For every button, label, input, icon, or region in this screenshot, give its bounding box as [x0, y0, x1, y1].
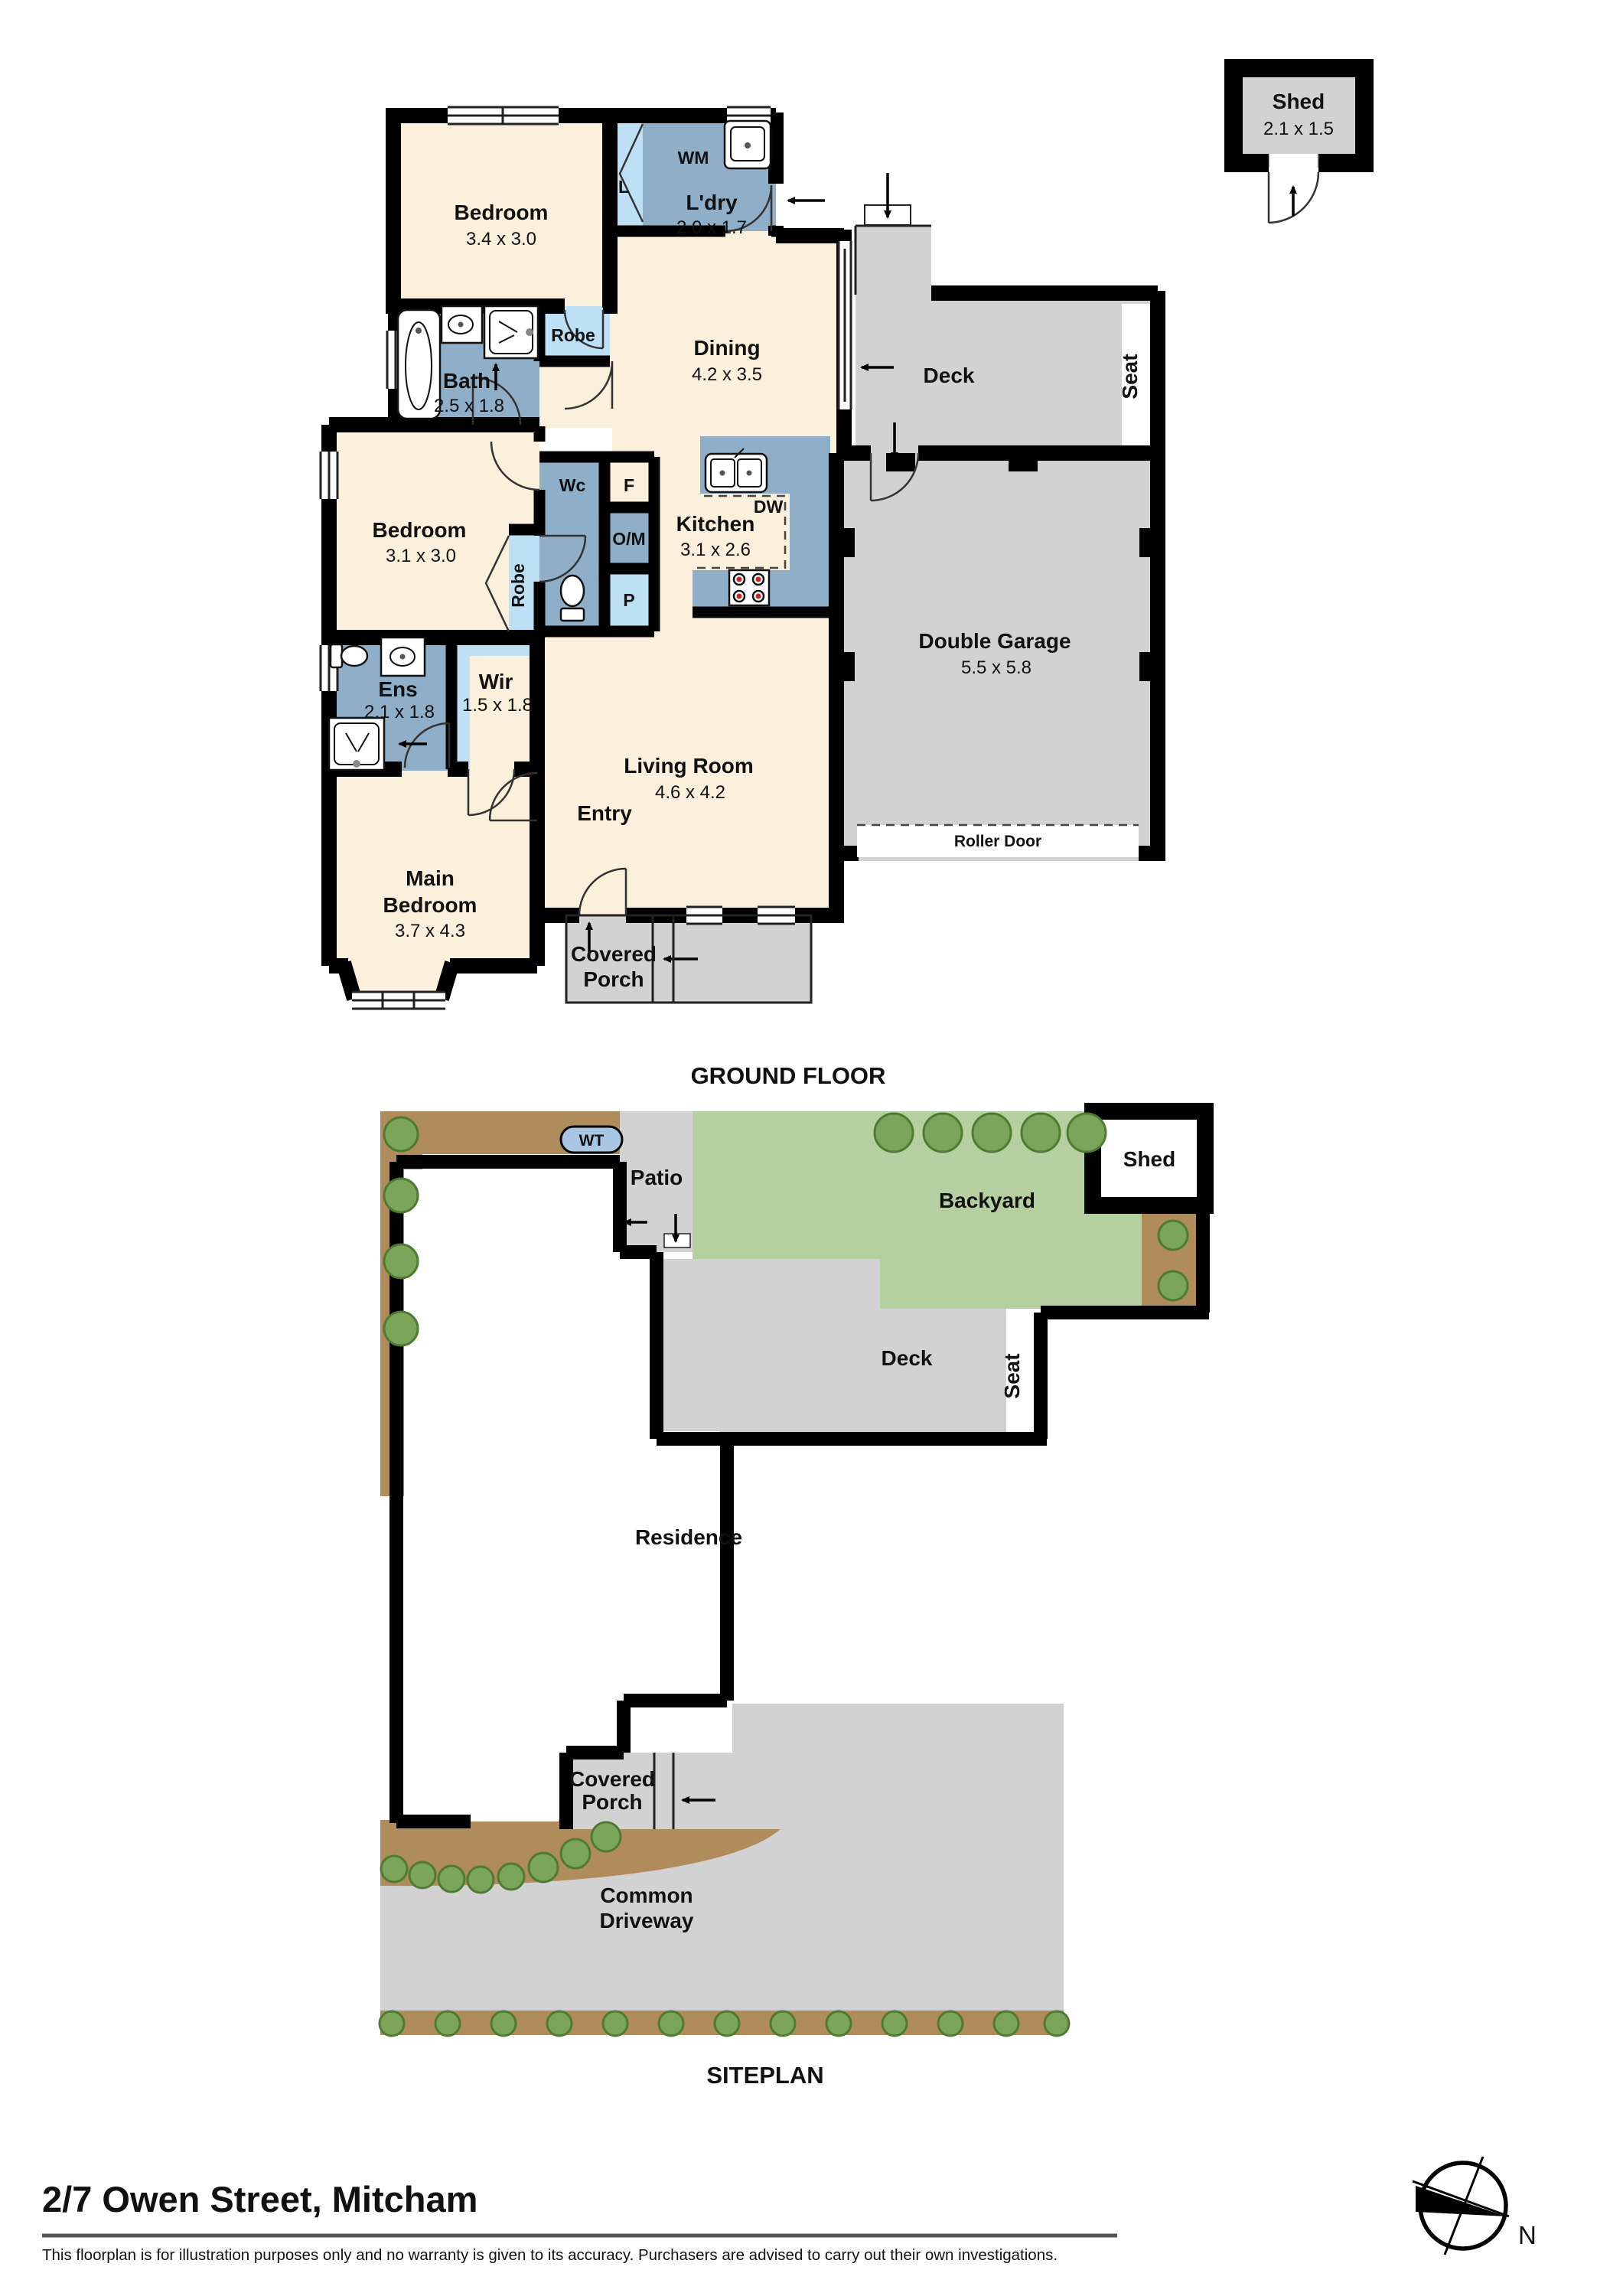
bath-label: Bath	[443, 369, 490, 393]
disclaimer-text: This floorplan is for illustration purpo…	[42, 2246, 1058, 2264]
deck-site-label: Deck	[882, 1346, 933, 1370]
porch-ground-line2: Porch	[583, 967, 644, 991]
robe-mid-label: Robe	[508, 563, 528, 608]
wc-label: Wc	[559, 475, 586, 495]
porch-site-line2: Porch	[582, 1790, 642, 1814]
bedroom-mid-label: Bedroom	[373, 518, 467, 542]
bedroom-top-label: Bedroom	[455, 201, 549, 224]
bath-shower-icon	[484, 306, 538, 358]
laundry-dims: 2.0 x 1.7	[676, 217, 747, 238]
main-bedroom-line1: Main	[406, 866, 455, 890]
laundry-trough-icon	[725, 121, 771, 168]
footer: 2/7 Owen Street, Mitcham This floorplan …	[42, 2157, 1537, 2264]
water-tank-label: WT	[579, 1132, 605, 1150]
linen-label: L	[618, 177, 629, 197]
living-dims: 4.6 x 4.2	[655, 782, 725, 803]
ensuite-toilet-icon	[331, 644, 367, 667]
wir-label: Wir	[479, 670, 513, 693]
ensuite-dims: 2.1 x 1.8	[364, 702, 435, 722]
roller-door-label: Roller Door	[954, 833, 1041, 850]
fridge-label: F	[624, 475, 634, 495]
living-label: Living Room	[624, 754, 754, 778]
kitchen-sink-icon	[706, 448, 767, 492]
stove-icon	[729, 570, 769, 605]
garage-dims: 5.5 x 5.8	[961, 657, 1031, 678]
bedroom-top-dims: 3.4 x 3.0	[466, 229, 536, 249]
bedroom-mid-dims: 3.1 x 3.0	[386, 546, 456, 566]
siteplan: WT	[380, 1111, 1209, 2089]
entry-label: Entry	[577, 801, 632, 825]
kitchen-dims: 3.1 x 2.6	[680, 540, 751, 560]
residence-label: Residence	[635, 1525, 742, 1549]
seat-site-label: Seat	[1000, 1353, 1024, 1398]
wm-label: WM	[678, 148, 709, 168]
driveway-line1: Common	[600, 1883, 693, 1907]
address-title: 2/7 Owen Street, Mitcham	[42, 2179, 477, 2219]
laundry-label: L'dry	[686, 191, 738, 214]
bath-vanity-icon	[442, 306, 482, 343]
kitchen-label: Kitchen	[676, 512, 755, 536]
dining-dims: 4.2 x 3.5	[692, 364, 762, 385]
deck-ground-label: Deck	[924, 364, 975, 387]
ensuite-label: Ens	[378, 677, 417, 701]
porch-ground-line1: Covered	[571, 942, 657, 966]
patio-label: Patio	[631, 1166, 683, 1189]
pantry-label: P	[623, 590, 634, 610]
compass-north-label: N	[1518, 2221, 1537, 2249]
ground-floor-plan: Shed 2.1 x 1.5 Bedroom 3.4 x 3.0 WM L L'…	[321, 59, 1374, 1089]
ensuite-shower-icon	[329, 718, 384, 770]
backyard-label: Backyard	[939, 1189, 1035, 1212]
shed-ground: Shed 2.1 x 1.5	[1224, 59, 1374, 223]
wc-toilet-icon	[561, 576, 584, 621]
robe-top-label: Robe	[551, 325, 595, 345]
floorplan-canvas: Shed 2.1 x 1.5 Bedroom 3.4 x 3.0 WM L L'…	[0, 0, 1623, 2296]
deck-floor	[855, 226, 1158, 461]
driveway-line2: Driveway	[600, 1909, 694, 1932]
siteplan-title: SITEPLAN	[706, 2062, 823, 2089]
dining-label: Dining	[693, 336, 760, 360]
seat-ground-label: Seat	[1118, 354, 1142, 399]
shed-site-label: Shed	[1123, 1147, 1175, 1171]
bath-dims: 2.5 x 1.8	[434, 396, 504, 416]
ensuite-vanity-icon	[381, 638, 425, 676]
water-tank: WT	[561, 1127, 622, 1153]
shed-ground-dims: 2.1 x 1.5	[1263, 119, 1334, 139]
main-bedroom-line2: Bedroom	[383, 893, 477, 917]
garage-label: Double Garage	[918, 629, 1071, 653]
dw-label: DW	[754, 497, 784, 517]
porch-site-line1: Covered	[569, 1767, 655, 1791]
floorplan-page: Shed 2.1 x 1.5 Bedroom 3.4 x 3.0 WM L L'…	[0, 0, 1623, 2296]
oven-micro-label: O/M	[612, 529, 645, 549]
ground-floor-title: GROUND FLOOR	[691, 1062, 886, 1089]
compass: N	[1413, 2157, 1537, 2255]
wir-dims: 1.5 x 1.8	[462, 695, 533, 716]
compass-needle	[1416, 2186, 1506, 2216]
shed-ground-label: Shed	[1273, 90, 1325, 113]
main-bedroom-dims: 3.7 x 4.3	[395, 921, 465, 941]
